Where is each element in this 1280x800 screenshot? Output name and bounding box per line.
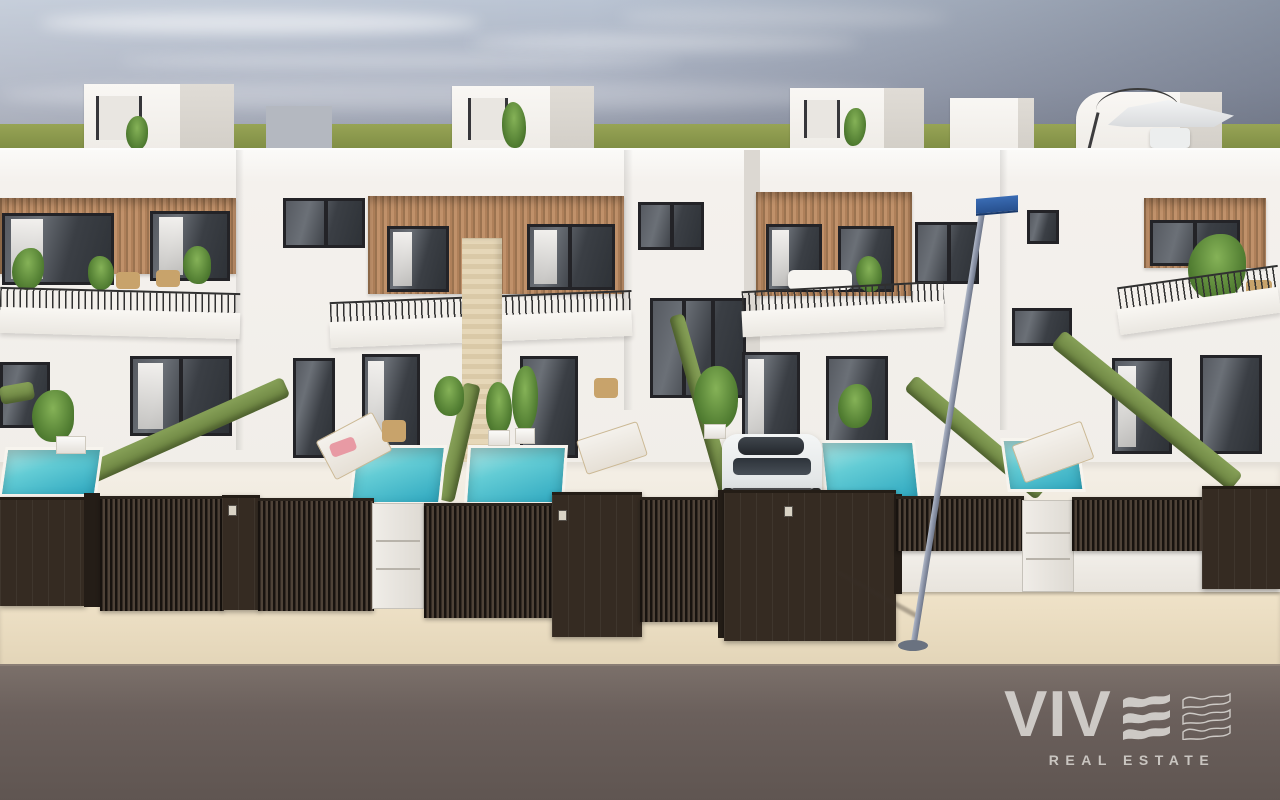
rooftop-volume-1-side: [180, 84, 234, 150]
car-windshield: [733, 458, 811, 475]
rooftop-volume-3-side: [884, 88, 924, 148]
curtain: [534, 230, 557, 284]
driveway-gate-main: [724, 490, 896, 641]
wicker-chair: [594, 378, 618, 398]
planter-box: [56, 436, 86, 454]
yard-plant: [434, 376, 464, 416]
gate-number-plaque: [228, 505, 237, 516]
rooftop-window-3: [804, 100, 840, 138]
logo-wordmark: VIV: [1004, 690, 1112, 738]
yard-plant: [32, 390, 74, 442]
planter-box: [515, 428, 535, 444]
facade-seam: [1000, 150, 1008, 430]
yard-plant: [838, 384, 872, 428]
vive-watermark: VIV REAL ESTATE: [1004, 690, 1260, 768]
fence-slat-panel: [424, 503, 554, 618]
balcony-plant: [183, 246, 211, 284]
fence-solid-panel: [0, 497, 86, 606]
rooftop-plant-2: [502, 102, 526, 148]
fence-slat-panel: [640, 497, 724, 622]
fence-slat-gate: [100, 496, 224, 611]
corner-window-house4-small: [1027, 210, 1059, 244]
utility-cabinet: [1022, 500, 1074, 592]
gate-number-plaque: [784, 506, 793, 517]
lamp-base: [898, 640, 928, 651]
stair-volume-gray: [266, 106, 332, 150]
curtain: [138, 363, 163, 430]
pool-1: [0, 447, 104, 497]
upper-window-house2-b: [527, 224, 615, 290]
car-sunroof: [738, 437, 804, 455]
curtain: [159, 217, 183, 275]
fence-slat-panel-short: [1072, 497, 1204, 551]
roof-terrace-furniture: [1150, 128, 1190, 148]
fence-slat-panel: [258, 498, 374, 611]
cabinet-groove: [376, 540, 420, 542]
rooftop-volume-2-side: [550, 86, 594, 148]
window-mullion: [324, 201, 328, 245]
logo-row: VIV: [1004, 690, 1260, 740]
corner-window-house2: [283, 198, 365, 248]
stair-volume-4: [950, 98, 1020, 150]
balcony-plant: [88, 256, 114, 290]
facade-seam: [624, 150, 633, 410]
window-mullion: [568, 227, 572, 287]
planter-box: [488, 430, 510, 446]
cabinet-groove: [1026, 532, 1070, 534]
cabinet-groove: [376, 568, 420, 570]
lower-window-house4-b: [1200, 355, 1262, 454]
fence-pillar: [84, 493, 100, 607]
rattan-chair: [156, 270, 180, 287]
tower-window: [638, 202, 704, 250]
fence-slat-panel-short: [896, 496, 1024, 551]
logo-tagline: REAL ESTATE: [1004, 752, 1260, 768]
wave-e-outline-icon: [1182, 690, 1232, 740]
rattan-chair: [116, 272, 140, 289]
stair-volume-4-side: [1018, 98, 1034, 150]
side-table: [382, 420, 406, 442]
curtain: [393, 232, 412, 286]
fence-solid-gate-right: [1202, 486, 1280, 589]
upper-window-house2-a: [387, 226, 449, 292]
yard-plant-fern: [694, 366, 738, 430]
curtain: [772, 230, 789, 286]
gate-number-plaque: [558, 510, 567, 521]
window-mullion: [670, 205, 674, 247]
utility-cabinet: [372, 503, 424, 609]
window-mullion: [947, 225, 951, 281]
rooftop-plant-1: [126, 116, 148, 150]
planter-box: [704, 424, 726, 439]
real-estate-render-scene: VIV REAL ESTATE: [0, 0, 1280, 800]
wave-e-filled-icon: [1122, 690, 1172, 740]
cabinet-groove: [1026, 558, 1070, 560]
